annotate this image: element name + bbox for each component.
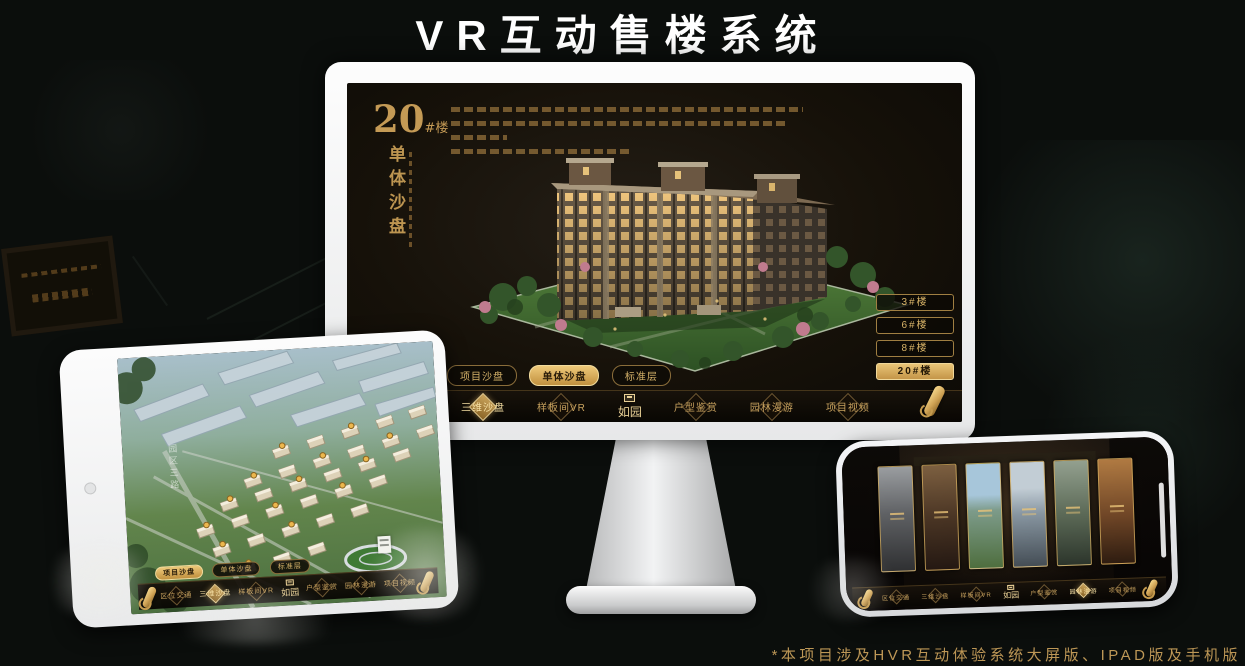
scene-thumbnail[interactable] [1097,458,1136,565]
scroll-icon[interactable] [419,570,435,593]
floor-button-3[interactable]: 3#楼 [876,294,954,311]
nav-item-garden-roam[interactable]: 园林漫游 [345,579,378,591]
tablet-screen: 园区三路 项目沙盘 单体沙盘 标准层 区位交通 三维沙盘 样板间VR 如园 户型… [117,341,447,614]
brand-logo: 如园 [1003,585,1020,602]
tab-standard-floor[interactable]: 标准层 [269,558,310,574]
bg-plaque [1,236,123,337]
nav-item-unit-gallery[interactable]: 户型鉴赏 [1030,587,1058,597]
road-label: 园区三路 [166,443,182,492]
tablet-device: 园区三路 项目沙盘 单体沙盘 标准层 区位交通 三维沙盘 样板间VR 如园 户型… [59,329,460,628]
floor-button-group: 3#楼 6#楼 8#楼 20#楼 [876,294,954,386]
sandbox-tab-group: 项目沙盘 单体沙盘 标准层 [447,365,679,386]
scene-thumbnail[interactable] [877,465,916,572]
nav-item-location[interactable]: 区位交通 [882,592,910,602]
bg-foliage [980,140,1245,440]
nav-item-garden-roam[interactable]: 园林漫游 [750,399,794,414]
monitor-stand-base [566,586,756,614]
tab-single-sandbox[interactable]: 单体沙盘 [529,365,599,386]
subtitle-deco-line [409,151,412,247]
bg-map-road [132,256,168,306]
scroll-icon[interactable] [141,585,157,608]
nav-item-3d-sandbox[interactable]: 三维沙盘 [199,587,232,599]
tab-project-sandbox[interactable]: 项目沙盘 [155,564,204,581]
tab-standard-floor[interactable]: 标准层 [612,365,671,386]
bg-buildings [10,60,230,200]
scene-thumbnail[interactable] [1009,461,1048,568]
map-label-flag [377,536,391,554]
nav-item-showroom-vr[interactable]: 样板间VR [960,589,992,599]
scene-thumbnail[interactable] [1053,459,1092,566]
building-3d-render [465,139,912,376]
page-title: VR互动售楼系统 [0,2,1245,63]
building-number: 20 [373,97,425,141]
monitor-stand-neck [586,438,736,590]
tab-project-sandbox[interactable]: 项目沙盘 [447,365,517,386]
scene-gallery [877,458,1136,573]
nav-item-project-video[interactable]: 项目视频 [1109,584,1137,594]
scene-thumbnail[interactable] [965,462,1004,569]
scene-thumbnail[interactable] [921,464,960,571]
footnote-text: *本项目涉及HVR互动体验系统大屏版、IPAD版及手机版 [772,644,1241,665]
scroll-icon[interactable] [860,588,874,607]
nav-item-showroom-vr[interactable]: 样板间VR [537,399,586,414]
building-subtitle: 单体沙盘 [383,145,408,265]
nav-item-garden-roam[interactable]: 园林漫游 [1069,585,1097,595]
tab-single-sandbox[interactable]: 单体沙盘 [212,561,261,578]
nav-item-unit-gallery[interactable]: 户型鉴赏 [674,399,718,414]
nav-item-project-video[interactable]: 项目视频 [826,399,870,414]
phone-device: 区位交通 三维沙盘 样板间VR 如园 户型鉴赏 园林漫游 项目视频 [835,430,1179,618]
nav-item-unit-gallery[interactable]: 户型鉴赏 [306,581,339,593]
nav-item-3d-sandbox[interactable]: 三维沙盘 [461,399,505,414]
nav-item-location[interactable]: 区位交通 [160,589,193,601]
scroll-icon[interactable] [1145,578,1159,597]
tablet-camera-icon [84,482,97,495]
floor-button-6[interactable]: 6#楼 [876,317,954,334]
brand-logo: 如园 [280,579,299,599]
nav-item-project-video[interactable]: 项目视频 [384,577,417,589]
floor-button-8[interactable]: 8#楼 [876,340,954,357]
phone-screen: 区位交通 三维沙盘 样板间VR 如园 户型鉴赏 园林漫游 项目视频 [841,436,1173,611]
floor-button-20[interactable]: 20#楼 [876,363,954,380]
brand-logo: 如园 [618,394,642,420]
nav-item-showroom-vr[interactable]: 样板间VR [238,585,274,597]
nav-item-3d-sandbox[interactable]: 三维沙盘 [921,591,949,601]
building-number-unit: #楼 [425,121,449,136]
building-title: 20#楼 [373,97,448,141]
seal-icon [624,394,635,402]
